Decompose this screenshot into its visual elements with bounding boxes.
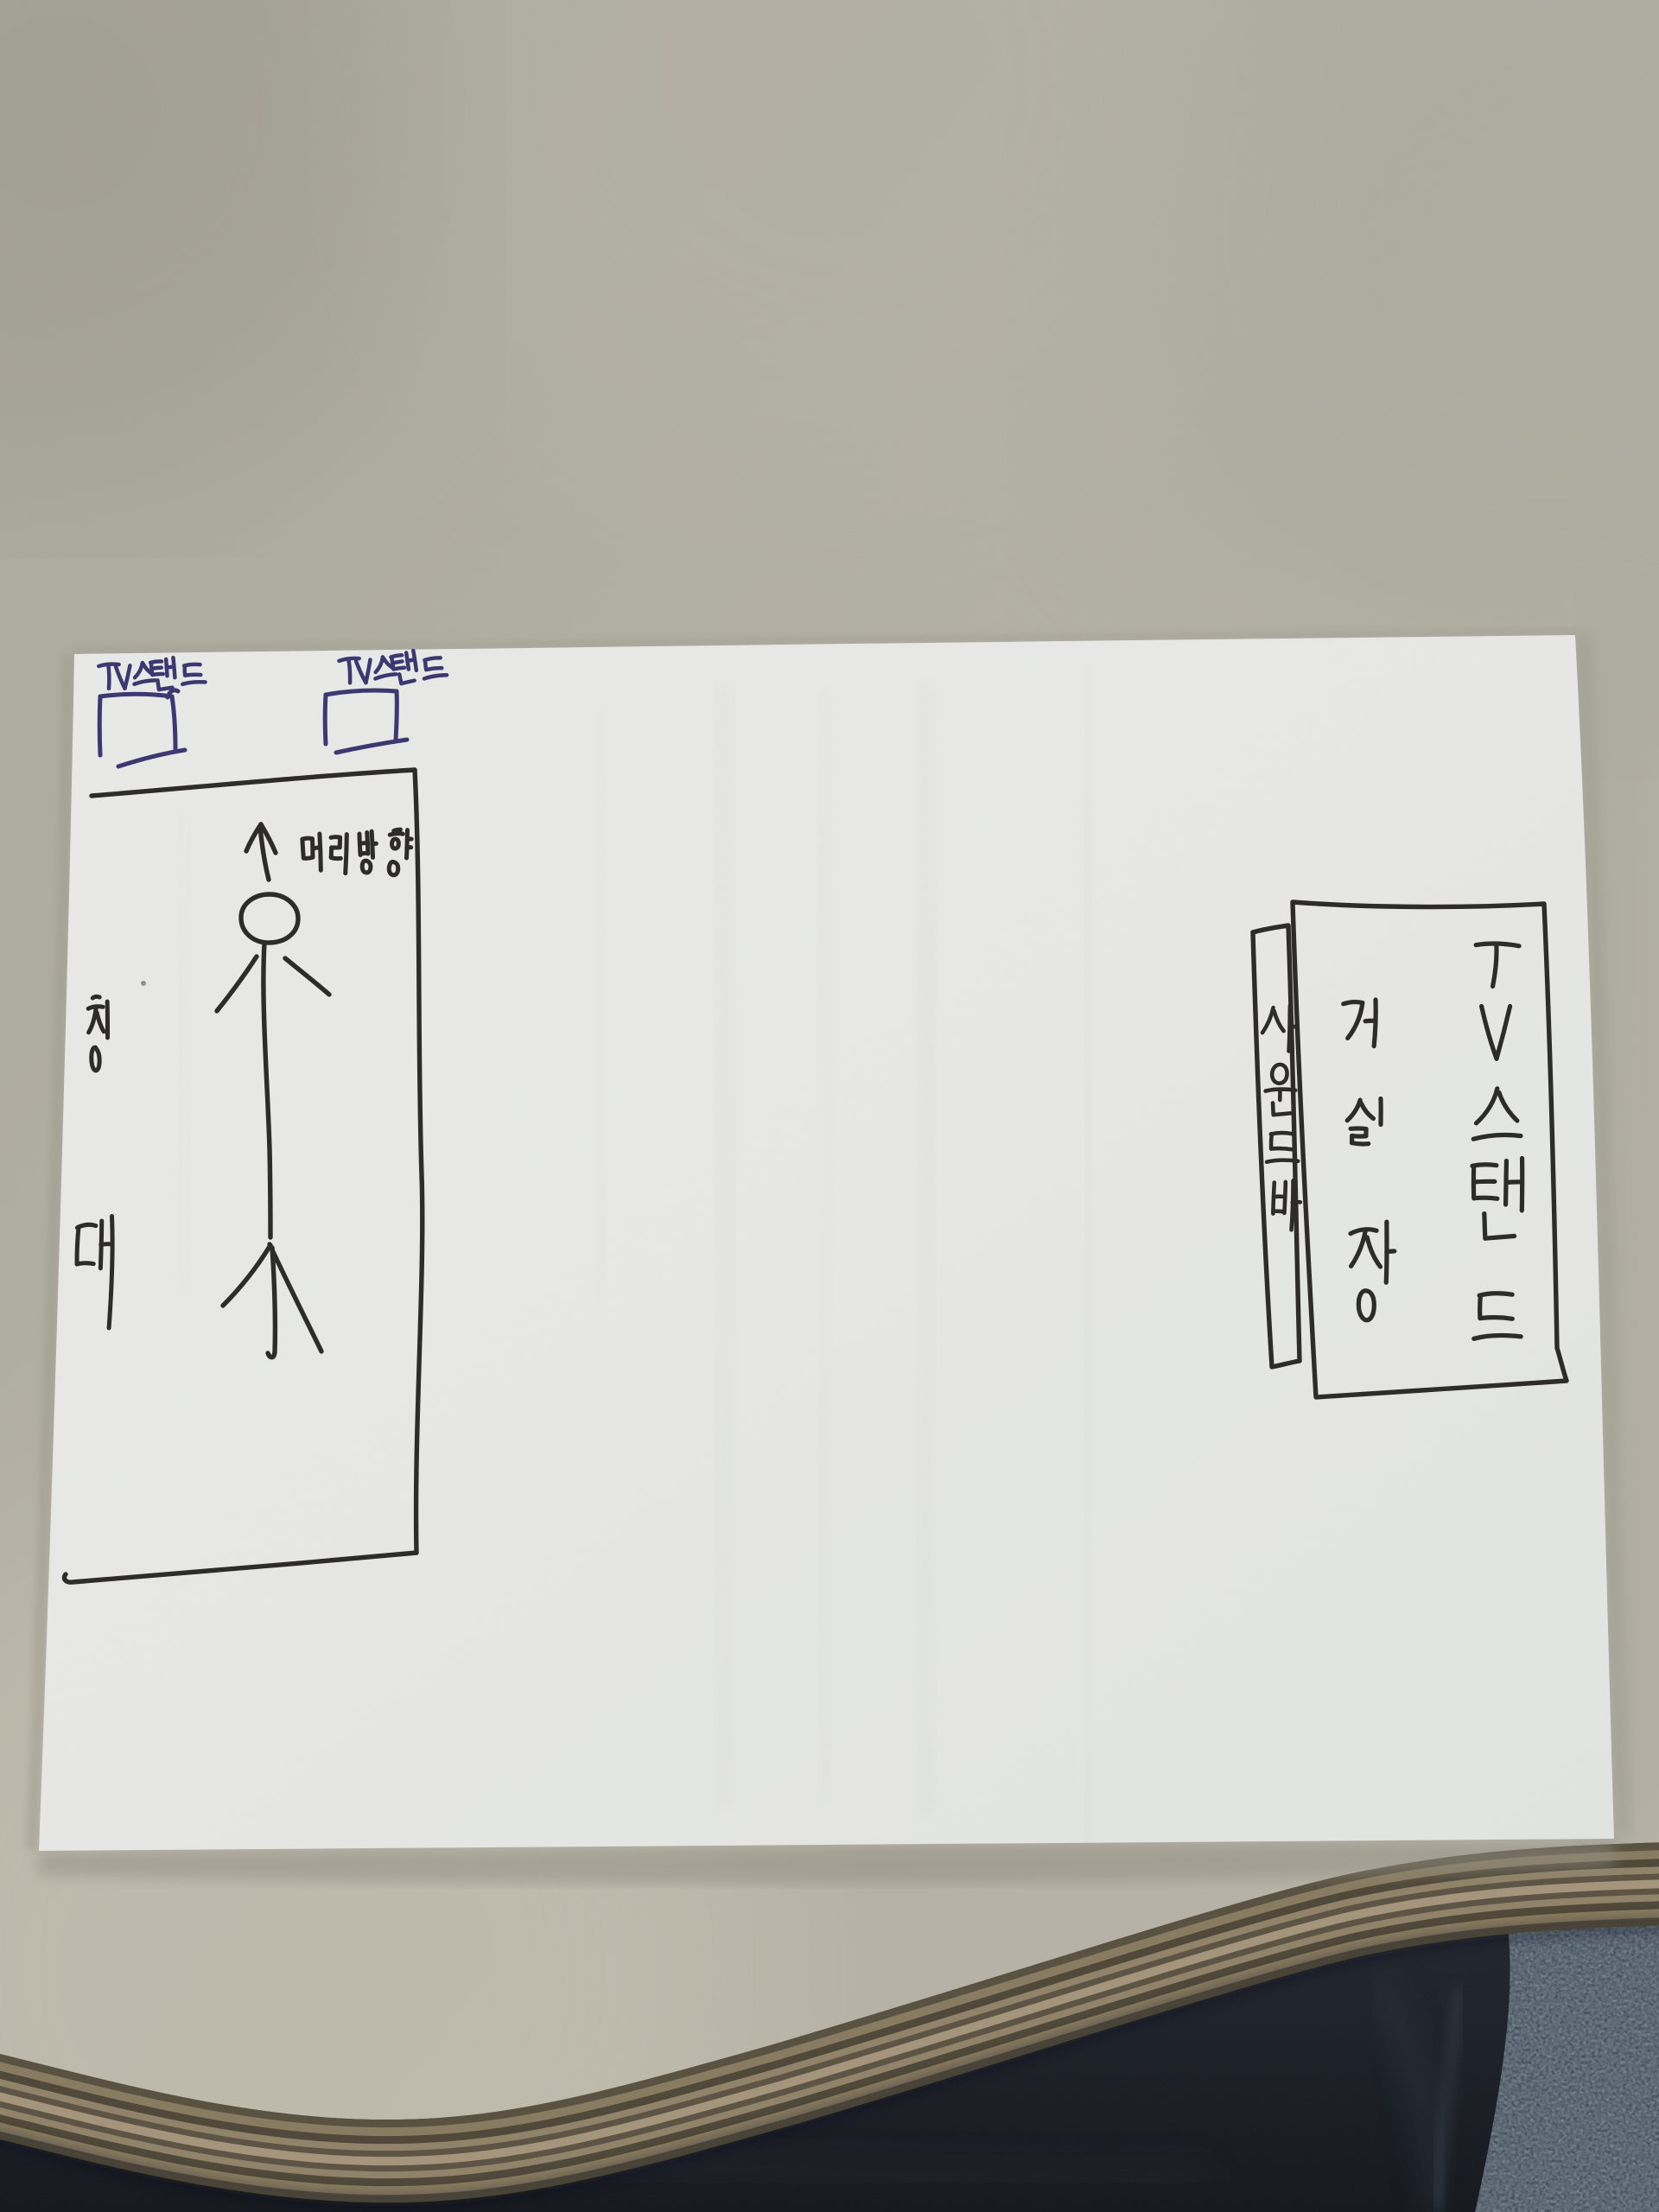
photo-grain — [0, 0, 1659, 2212]
photo-hand-drawn-room-layout: TV스탠드 TV스탠드 머리방향 침대 사운드바 거실장 TV스탠드 const… — [0, 0, 1659, 2212]
